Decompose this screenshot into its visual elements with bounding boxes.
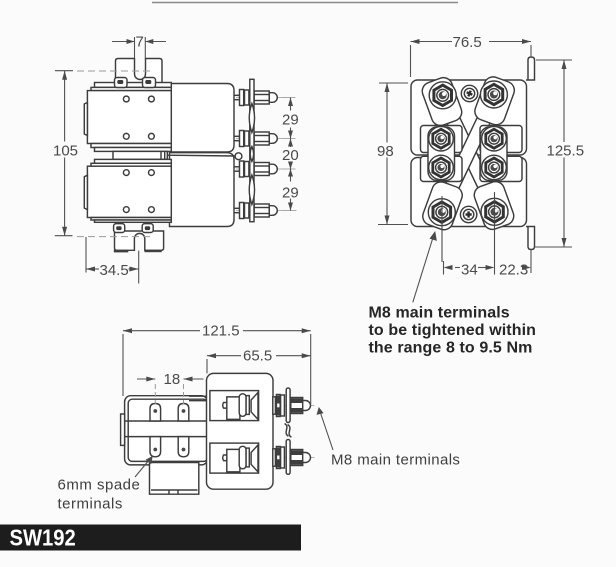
svg-text:SW192: SW192 xyxy=(10,524,76,551)
svg-text:7: 7 xyxy=(136,34,144,51)
svg-text:20: 20 xyxy=(282,147,299,164)
svg-text:29: 29 xyxy=(282,184,299,201)
svg-text:terminals: terminals xyxy=(58,496,123,513)
svg-text:18: 18 xyxy=(164,371,181,388)
svg-text:to be tightened within: to be tightened within xyxy=(369,322,537,339)
svg-text:34: 34 xyxy=(461,262,478,279)
svg-text:121.5: 121.5 xyxy=(202,323,240,340)
svg-text:98: 98 xyxy=(377,143,394,160)
svg-text:6mm spade: 6mm spade xyxy=(58,477,141,494)
svg-text:22.3: 22.3 xyxy=(499,262,528,279)
svg-text:M8 main terminals: M8 main terminals xyxy=(331,452,460,469)
svg-text:105: 105 xyxy=(53,143,78,160)
svg-text:M8 main terminals: M8 main terminals xyxy=(369,305,510,322)
svg-text:29: 29 xyxy=(282,112,299,129)
svg-text:34.5: 34.5 xyxy=(100,262,129,279)
svg-text:65.5: 65.5 xyxy=(243,348,272,365)
svg-text:76.5: 76.5 xyxy=(453,34,482,51)
svg-text:125.5: 125.5 xyxy=(547,143,585,160)
svg-text:the range 8 to 9.5 Nm: the range 8 to 9.5 Nm xyxy=(369,340,533,357)
